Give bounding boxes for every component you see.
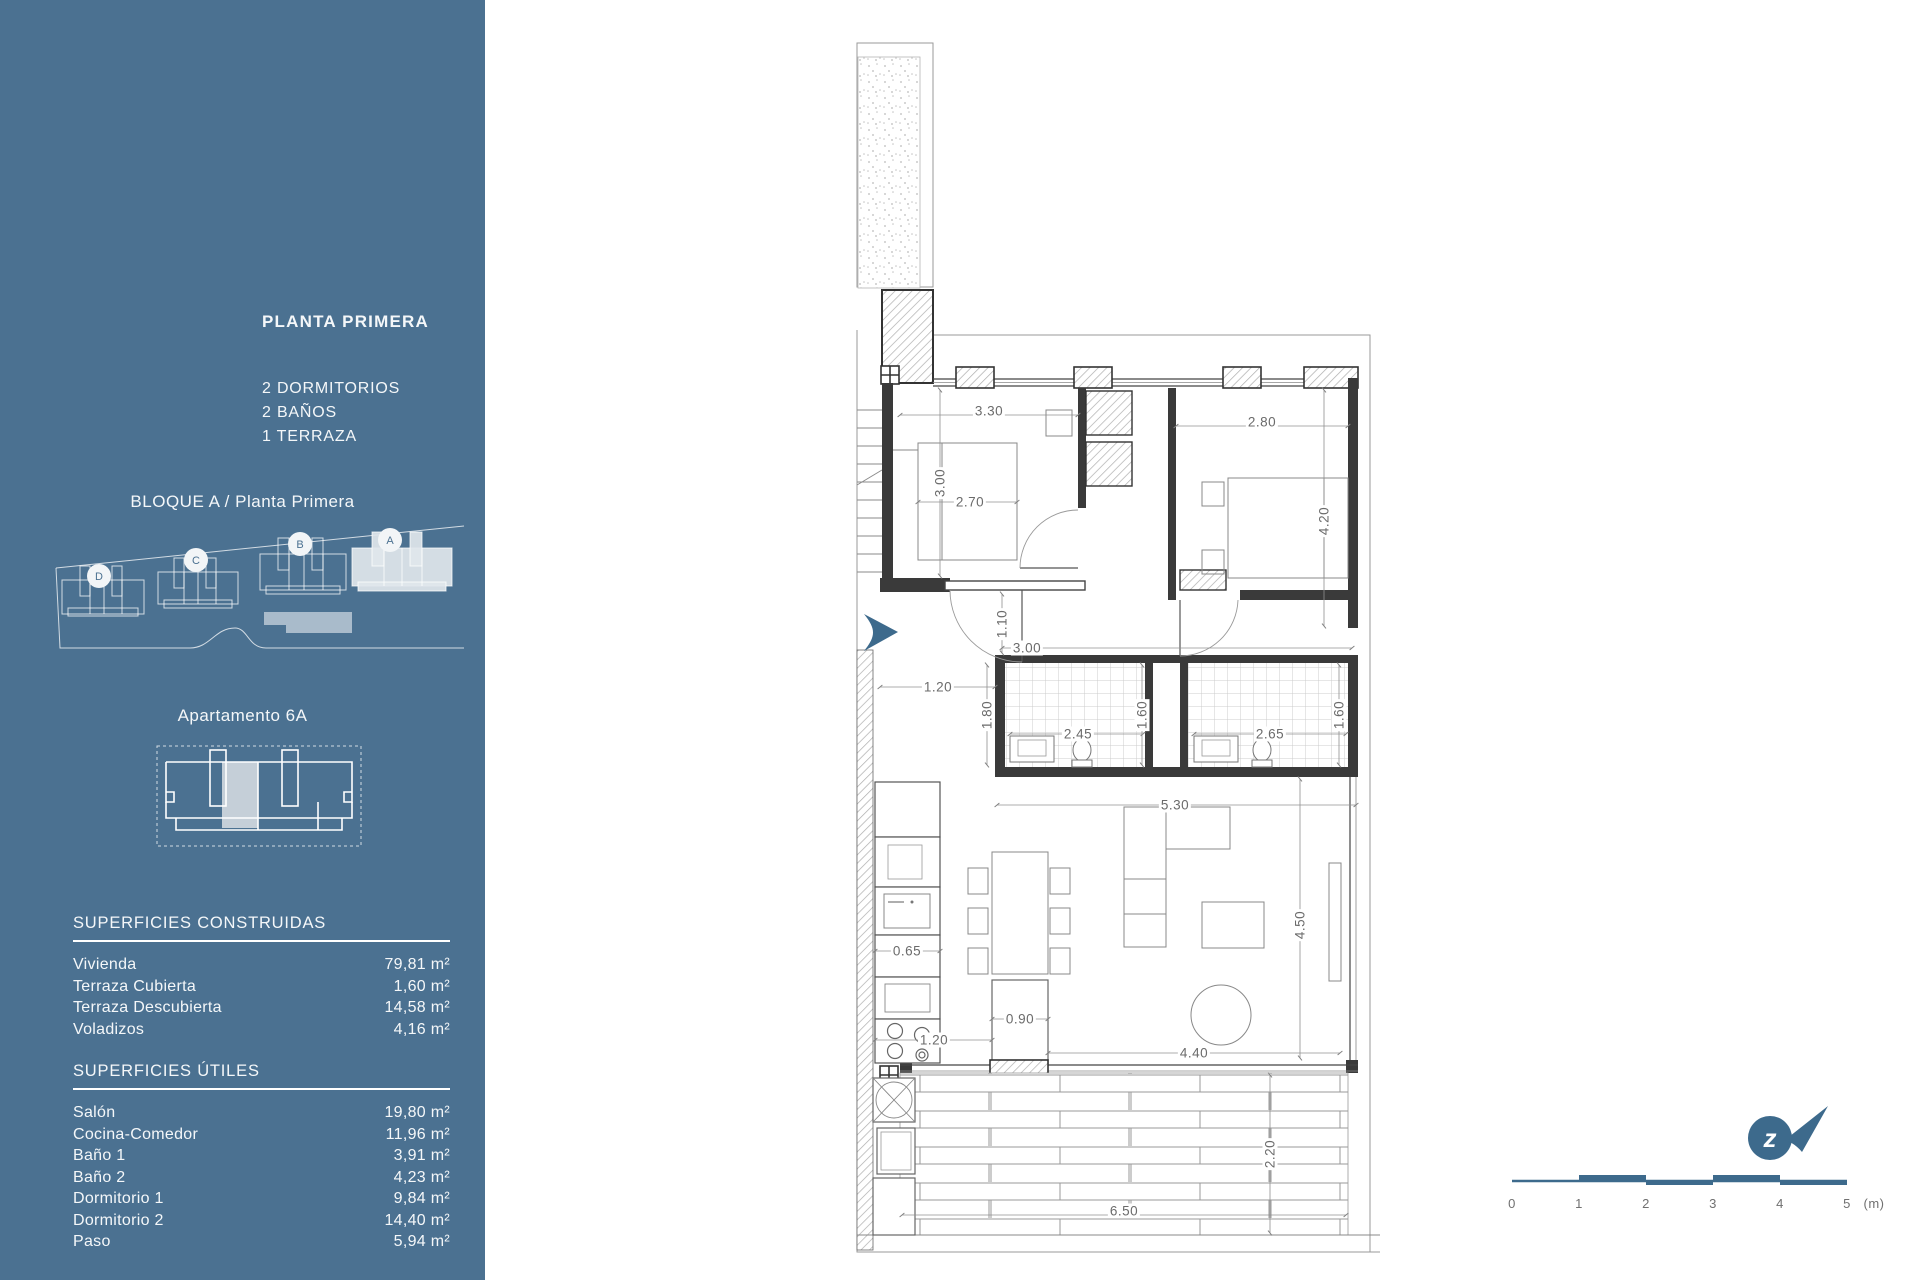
surfaces-useful-heading: SUPERFICIES ÚTILES: [73, 1062, 450, 1090]
floor-plan: 3.302.803.002.704.201.103.001.201.802.45…: [850, 30, 1410, 1265]
feature-list: 2 DORMITORIOS2 BAÑOS1 TERRAZA: [262, 377, 400, 449]
surface-value: 4,23 m²: [394, 1167, 450, 1189]
surface-row: Terraza Cubierta 1,60 m²: [73, 976, 450, 998]
surface-value: 11,96 m²: [386, 1124, 450, 1146]
surface-value: 79,81 m²: [384, 954, 450, 976]
surface-value: 4,16 m²: [394, 1019, 450, 1041]
svg-text:D: D: [95, 571, 103, 583]
scale-label: 1: [1575, 1196, 1583, 1211]
apartment-locator: [152, 740, 367, 852]
entrance-arrow-icon: [864, 614, 898, 651]
exterior-wall-left: [857, 650, 873, 1250]
surface-label: Dormitorio 2: [73, 1210, 164, 1232]
surface-label: Salón: [73, 1102, 115, 1124]
bathroom2: [1188, 663, 1348, 767]
surface-row: Paso 5,94 m²: [73, 1231, 450, 1253]
site-building-a-highlighted: [352, 532, 452, 591]
surface-value: 9,84 m²: [394, 1188, 450, 1210]
upper-terrace: [857, 43, 933, 288]
terrace: [857, 1073, 1380, 1235]
surface-label: Paso: [73, 1231, 111, 1253]
living-window-right: [1350, 777, 1356, 1060]
bathroom1: [1005, 663, 1145, 767]
scale-bar: 012345(m): [1498, 1172, 1898, 1222]
kitchen-units: [875, 782, 940, 1063]
entry-door: [945, 581, 1085, 662]
feature-item: 2 BAÑOS: [262, 401, 400, 425]
scale-label: (m): [1864, 1196, 1885, 1211]
scale-label: 3: [1709, 1196, 1717, 1211]
scale-label: 2: [1642, 1196, 1650, 1211]
floor-plan-page: { "colors":{"sidebar_bg":"#4B7191","acce…: [0, 0, 1920, 1280]
surface-value: 14,40 m²: [384, 1210, 450, 1232]
surfaces-built-section: SUPERFICIES CONSTRUIDAS Vivienda 79,81 m…: [73, 914, 450, 1040]
surface-label: Vivienda: [73, 954, 137, 976]
surface-label: Voladizos: [73, 1019, 144, 1041]
bedroom2-furniture: [1202, 478, 1348, 578]
surface-value: 5,94 m²: [394, 1231, 450, 1253]
surface-label: Terraza Descubierta: [73, 997, 222, 1019]
surfaces-useful-section: SUPERFICIES ÚTILES Salón 19,80 m² Cocina…: [73, 1062, 450, 1253]
surfaces-built-rows: Vivienda 79,81 m² Terraza Cubierta 1,60 …: [73, 954, 450, 1040]
surface-row: Cocina-Comedor 11,96 m²: [73, 1124, 450, 1146]
surface-value: 14,58 m²: [384, 997, 450, 1019]
terrace-planters: [873, 1078, 915, 1235]
scale-label: 4: [1776, 1196, 1784, 1211]
surface-row: Salón 19,80 m²: [73, 1102, 450, 1124]
surface-row: Dormitorio 2 14,40 m²: [73, 1210, 450, 1232]
page-title: PLANTA PRIMERA: [262, 312, 429, 332]
block-label: BLOQUE A / Planta Primera: [0, 492, 485, 512]
svg-text:C: C: [192, 555, 200, 567]
svg-text:A: A: [386, 535, 394, 547]
surface-row: Vivienda 79,81 m²: [73, 954, 450, 976]
kitchen-island: [992, 980, 1048, 1063]
wardrobe-1: [1086, 391, 1132, 435]
surface-label: Cocina-Comedor: [73, 1124, 198, 1146]
wardrobe-3: [1180, 570, 1226, 590]
surfaces-useful-rows: Salón 19,80 m² Cocina-Comedor 11,96 m² B…: [73, 1102, 450, 1253]
surface-value: 19,80 m²: [384, 1102, 450, 1124]
site-pool: [264, 612, 352, 633]
surface-label: Terraza Cubierta: [73, 976, 196, 998]
surface-row: Baño 1 3,91 m²: [73, 1145, 450, 1167]
surface-row: Dormitorio 1 9,84 m²: [73, 1188, 450, 1210]
bedroom1-furniture: [893, 410, 1072, 560]
surface-row: Voladizos 4,16 m²: [73, 1019, 450, 1041]
svg-text:z: z: [1763, 1123, 1777, 1153]
sidebar: PLANTA PRIMERA 2 DORMITORIOS2 BAÑOS1 TER…: [0, 0, 485, 1280]
svg-text:B: B: [296, 539, 303, 551]
feature-item: 2 DORMITORIOS: [262, 377, 400, 401]
north-arrow-icon: z: [1738, 1104, 1834, 1168]
surface-value: 3,91 m²: [394, 1145, 450, 1167]
surface-row: Terraza Descubierta 14,58 m²: [73, 997, 450, 1019]
column-symbol-top: [881, 366, 899, 384]
exterior-stairs: [857, 410, 882, 572]
living-furniture: [1124, 807, 1341, 1045]
apartment-label: Apartamento 6A: [0, 706, 485, 726]
site-plan-map: D C B A: [52, 520, 467, 658]
top-window-wall: [933, 367, 1358, 388]
scale-label: 5: [1843, 1196, 1851, 1211]
surfaces-built-heading: SUPERFICIES CONSTRUIDAS: [73, 914, 450, 942]
scale-bar-graphic: [1498, 1172, 1898, 1188]
surface-label: Baño 1: [73, 1145, 126, 1167]
surface-value: 1,60 m²: [394, 976, 450, 998]
scale-label: 0: [1508, 1196, 1516, 1211]
dining-table: [968, 852, 1070, 974]
wardrobe-2: [1086, 442, 1132, 486]
surface-row: Baño 2 4,23 m²: [73, 1167, 450, 1189]
surface-label: Dormitorio 1: [73, 1188, 164, 1210]
surface-label: Baño 2: [73, 1167, 126, 1189]
feature-item: 1 TERRAZA: [262, 425, 400, 449]
